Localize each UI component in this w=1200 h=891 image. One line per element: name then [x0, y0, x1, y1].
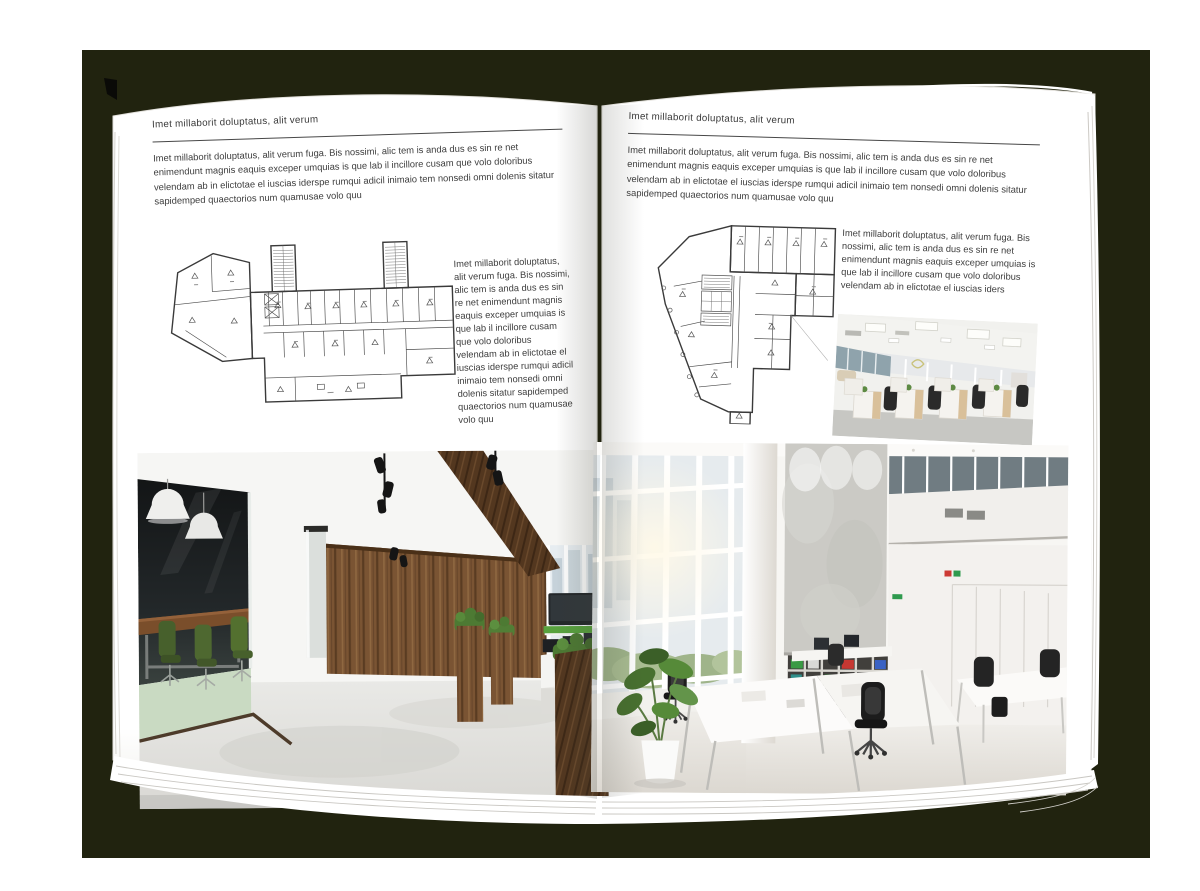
mockup-canvas: Imet millaborit doluptatus, alit verum I…	[0, 0, 1200, 891]
first-aid-sign-red	[944, 570, 951, 576]
office-photo-small	[832, 314, 1038, 446]
first-aid-sign-green	[953, 571, 960, 577]
floor-plan-drawing-right	[640, 215, 842, 426]
plant-pot	[641, 740, 679, 783]
office-photo-bright	[591, 442, 1068, 795]
mezzanine	[889, 456, 1069, 547]
stair-towers	[271, 242, 408, 292]
exit-sign	[892, 594, 902, 599]
stair-core	[701, 275, 732, 326]
interior-walls	[671, 224, 835, 390]
concrete-wall	[781, 443, 887, 656]
interior-walls	[173, 248, 456, 405]
wood-wall	[326, 542, 551, 680]
right-page: Imet millaborit doluptatus, alit verum I…	[583, 84, 1081, 827]
side-paragraph: Imet millaborit doluptatus, alit verum f…	[453, 254, 576, 427]
page-title: Imet millaborit doluptatus, alit verum	[628, 111, 795, 127]
left-page: Imet millaborit doluptatus, alit verum I…	[126, 82, 618, 816]
room-labels	[194, 275, 435, 397]
side-paragraph: Imet millaborit doluptatus, alit verum f…	[841, 227, 1041, 298]
intro-paragraph: Imet millaborit doluptatus, alit verum f…	[153, 138, 569, 208]
building-outline	[169, 246, 456, 405]
intro-paragraph: Imet millaborit doluptatus, alit verum f…	[626, 143, 1041, 212]
floor-plan-drawing-left	[162, 224, 458, 419]
page-title: Imet millaborit doluptatus, alit verum	[152, 114, 319, 130]
glass-partition	[304, 526, 329, 658]
reference-line	[790, 316, 829, 361]
office-photo-dark	[137, 450, 608, 809]
